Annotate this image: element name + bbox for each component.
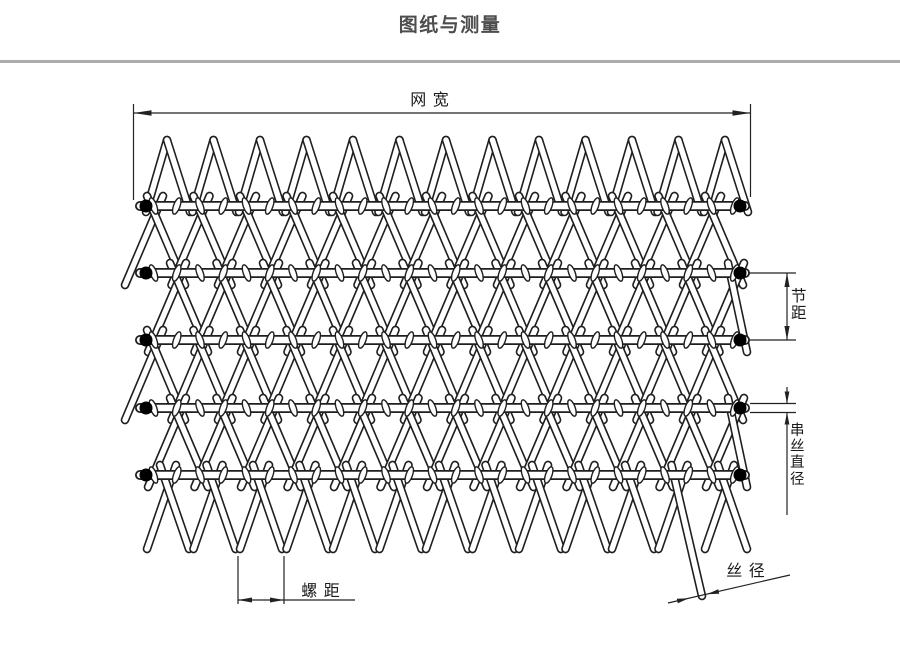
wire-diameter-label: 丝 径 bbox=[718, 557, 774, 581]
pitch-label: 节距 bbox=[791, 288, 808, 323]
page: 图纸与测量 网 宽 节距 串丝直径 螺 距 丝 径 bbox=[0, 0, 900, 645]
net-width-label: 网 宽 bbox=[390, 86, 470, 110]
spiral-pitch-label: 螺 距 bbox=[294, 577, 348, 601]
cross-wire-diameter-label: 串丝直径 bbox=[790, 423, 806, 488]
